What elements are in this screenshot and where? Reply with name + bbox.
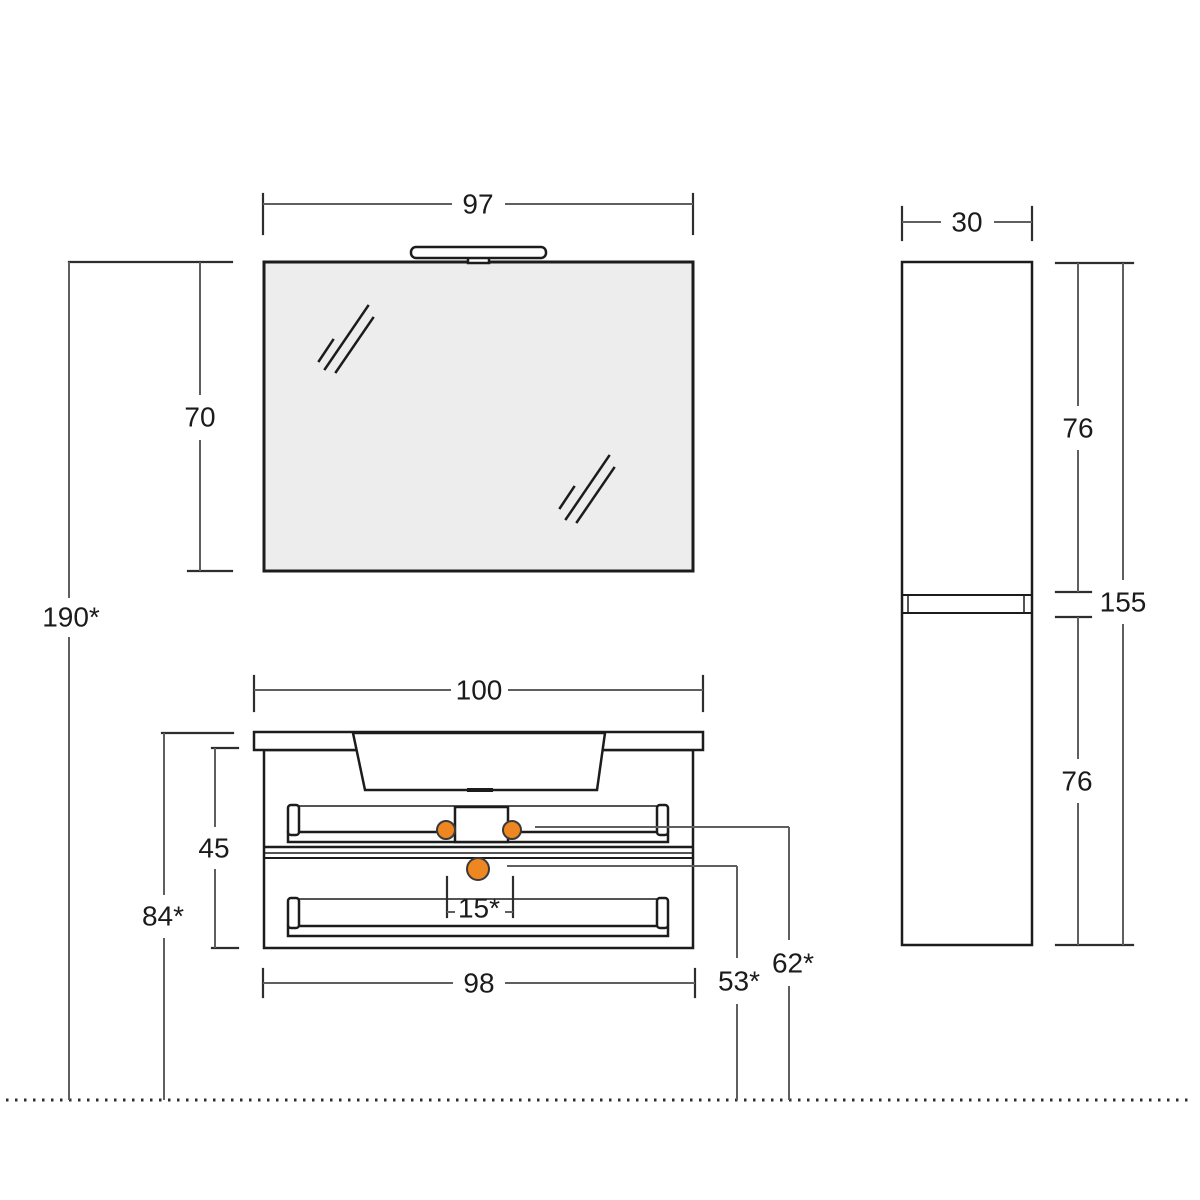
dim-column-width: 30 [902, 207, 1032, 241]
dim-label-column-width: 30 [951, 207, 982, 238]
side-column-group [902, 262, 1032, 945]
dim-column-heights: 76 155 76 [1056, 263, 1146, 945]
technical-drawing-page: 97 70 190* 100 45 84* [0, 0, 1200, 1200]
washbasin [353, 733, 605, 790]
dim-label-mirror-width: 97 [462, 189, 493, 220]
dim-label-vanity-top-width: 100 [456, 675, 503, 706]
handle-rail [288, 926, 668, 936]
handle-end-cap [288, 898, 299, 928]
handle-end-cap [657, 805, 668, 835]
dim-label-column-lower-height: 76 [1061, 766, 1092, 797]
dim-label-mirror-height: 70 [184, 402, 215, 433]
dim-vanity-top-width: 100 [254, 675, 703, 712]
siphon-cutout-box [455, 807, 508, 842]
dim-label-supply-height: 62* [772, 948, 814, 979]
dim-label-column-upper-height: 76 [1062, 413, 1093, 444]
light-bar [411, 247, 546, 258]
dim-label-worktop-height: 84* [142, 901, 184, 932]
bathroom-furniture-dimension-drawing: 97 70 190* 100 45 84* [0, 0, 1200, 1200]
dim-label-drain-height: 53* [718, 966, 760, 997]
side-column [902, 262, 1032, 945]
dim-label-vanity-body-height: 45 [198, 833, 229, 864]
dim-worktop-height: 84* [142, 733, 233, 1100]
dim-label-overall-height: 190* [42, 602, 100, 633]
dim-overall-height: 190* [42, 262, 100, 1100]
dim-vanity-bottom-width: 98 [263, 968, 695, 999]
drain-connection [467, 858, 489, 880]
dim-label-knob-spacing: 15* [458, 893, 500, 924]
dim-mirror-height: 70 [69, 262, 232, 571]
dim-vanity-body-height: 45 [198, 748, 238, 948]
supply-connection-right [503, 821, 521, 839]
supply-connection-left [437, 821, 455, 839]
mirror [264, 262, 693, 571]
handle-end-cap [657, 898, 668, 928]
dim-mirror-width: 97 [263, 189, 693, 235]
mirror-group [264, 247, 693, 571]
dim-label-vanity-bottom-width: 98 [463, 968, 494, 999]
handle-end-cap [288, 805, 299, 835]
dim-label-column-total-height: 155 [1100, 587, 1147, 618]
